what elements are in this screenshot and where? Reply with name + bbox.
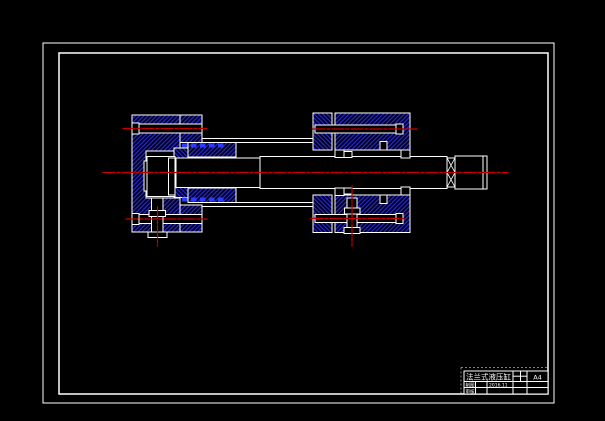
cushion-sleeve-bottom bbox=[174, 188, 188, 198]
assembly-drawing bbox=[103, 113, 508, 246]
cushion-sleeve-top bbox=[174, 148, 188, 158]
left-socket bbox=[144, 157, 175, 197]
date-text: 2016.11 bbox=[489, 383, 508, 389]
part-name-text: 法兰式液压缸 bbox=[466, 372, 511, 382]
cad-viewport: 法兰式液压缸 A4 制图 2016.11 审核 bbox=[0, 0, 605, 421]
flange-notch-bottom bbox=[380, 195, 387, 204]
label-check-text: 审核 bbox=[466, 388, 475, 395]
sheet-frames bbox=[43, 43, 554, 403]
paper-size-text: A4 bbox=[533, 374, 542, 382]
outer-frame bbox=[43, 43, 554, 403]
cad-canvas: 法兰式液压缸 A4 制图 2016.11 审核 bbox=[0, 0, 605, 421]
label-draw-text: 制图 bbox=[466, 382, 475, 389]
title-block: 法兰式液压缸 A4 制图 2016.11 审核 bbox=[461, 368, 548, 395]
flange-notch-top bbox=[380, 142, 387, 151]
